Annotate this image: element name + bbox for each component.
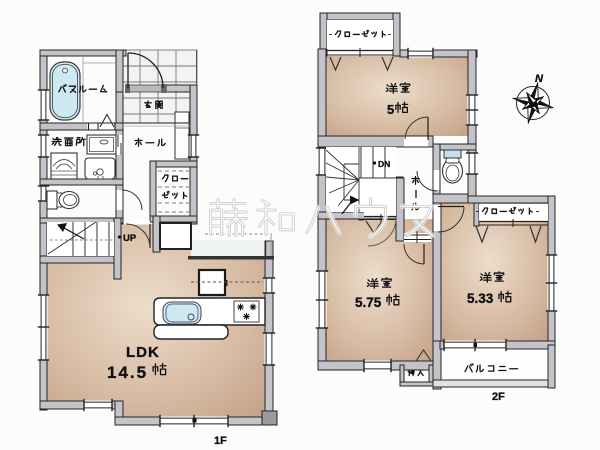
svg-text:DN: DN [378,159,390,169]
svg-text:5: 5 [387,102,394,117]
svg-text:5.75: 5.75 [355,295,382,310]
svg-text:1F: 1F [214,435,227,447]
svg-text:5.33: 5.33 [467,291,494,306]
svg-text:UP: UP [123,233,137,244]
svg-text:LDK: LDK [126,344,160,361]
svg-text:N: N [535,73,544,85]
svg-text:2F: 2F [492,391,505,403]
svg-text:14.5: 14.5 [107,363,148,382]
